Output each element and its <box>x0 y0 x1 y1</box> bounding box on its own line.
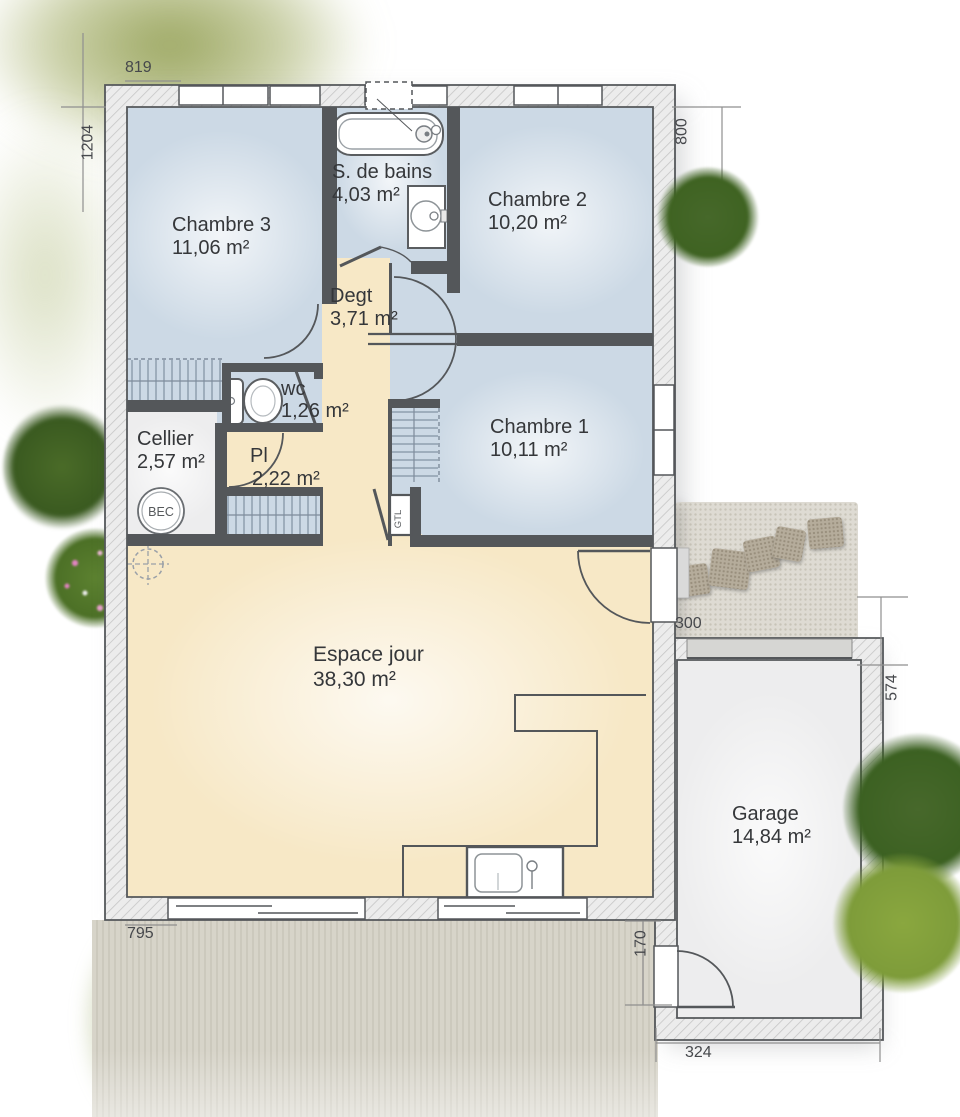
dim-garage-right: 574 <box>884 658 901 718</box>
room-area: 4,03 m² <box>332 184 432 207</box>
window-bath-high <box>366 82 412 109</box>
room-area: 38,30 m² <box>313 667 424 692</box>
label-pl: Pl 2,22 m² <box>250 445 320 491</box>
closet-chambre1 <box>392 408 438 482</box>
dim-right-top: 800 <box>674 102 691 162</box>
room-name: Pl <box>250 445 320 468</box>
dim-garage-door-side: 170 <box>633 914 650 974</box>
garage-door <box>687 639 852 658</box>
room-name: Degt <box>330 285 398 308</box>
room-name: Espace jour <box>313 642 424 667</box>
bec-label: BEC <box>148 505 174 519</box>
room-name: Chambre 3 <box>172 214 271 237</box>
room-name: Chambre 2 <box>488 189 587 212</box>
plan-drawing: BEC <box>0 0 960 1117</box>
entry-door-opening <box>651 548 677 622</box>
dim-passage: 300 <box>675 615 702 632</box>
room-area: 11,06 m² <box>172 237 271 260</box>
dim-garage-bottom: 324 <box>685 1044 712 1061</box>
dim-bottom: 795 <box>127 925 154 942</box>
label-cellier: Cellier 2,57 m² <box>137 428 205 474</box>
room-name: wc <box>281 378 349 400</box>
water-heater-icon: BEC <box>138 488 184 534</box>
label-espace-jour: Espace jour 38,30 m² <box>313 642 424 692</box>
room-area: 1,26 m² <box>281 400 349 422</box>
bush-garage-bottom <box>833 853 960 993</box>
kitchen-sink-icon <box>467 847 563 898</box>
room-area: 2,57 m² <box>137 451 205 474</box>
garage-side-door-opening <box>654 946 678 1007</box>
label-degt: Degt 3,71 m² <box>330 285 398 331</box>
bush-right-chambre2 <box>657 167 759 267</box>
room-area: 2,22 m² <box>252 468 320 491</box>
room-name: Cellier <box>137 428 205 451</box>
label-chambre2: Chambre 2 10,20 m² <box>488 189 587 235</box>
room-name: S. de bains <box>332 161 432 184</box>
window-chambre3-b <box>270 86 320 105</box>
toilet-icon <box>226 379 282 424</box>
label-garage: Garage 14,84 m² <box>732 803 811 849</box>
dim-top: 819 <box>125 59 152 76</box>
dim-left: 1204 <box>80 113 97 173</box>
gtl-label: GTL <box>393 510 404 528</box>
gtl-duct: GTL <box>390 495 411 535</box>
floor-plan-canvas: BEC <box>0 0 960 1117</box>
room-name: Garage <box>732 803 811 826</box>
room-area: 10,20 m² <box>488 212 587 235</box>
sliding-bay-2 <box>438 898 587 919</box>
label-chambre3: Chambre 3 11,06 m² <box>172 214 271 260</box>
room-area: 3,71 m² <box>330 308 398 331</box>
room-name: Chambre 1 <box>490 416 589 439</box>
label-chambre1: Chambre 1 10,11 m² <box>490 416 589 462</box>
room-area: 14,84 m² <box>732 826 811 849</box>
label-sdb: S. de bains 4,03 m² <box>332 161 432 207</box>
label-wc: wc 1,26 m² <box>281 378 349 422</box>
room-area: 10,11 m² <box>490 439 589 462</box>
sliding-bay-1 <box>168 898 365 919</box>
bathtub-icon <box>332 113 443 155</box>
